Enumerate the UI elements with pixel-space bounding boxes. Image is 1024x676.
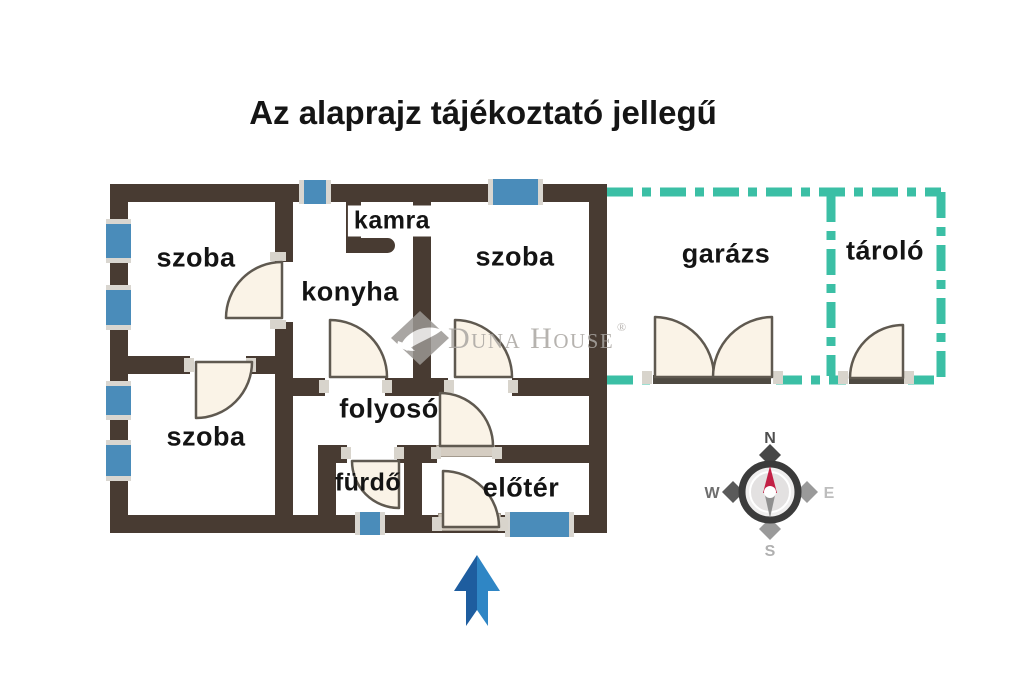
room-label-szoba-top-right: szoba [475, 242, 554, 273]
room-label-szoba-bottom-left: szoba [166, 422, 245, 453]
room-label-szoba-top-left: szoba [156, 243, 235, 274]
door-jamb [431, 447, 441, 459]
entrance-arrow-light-half [477, 555, 500, 626]
entrance-arrow-icon [454, 555, 500, 626]
door-jamb [270, 252, 286, 261]
compass-label-east: E [824, 485, 835, 502]
door-jamb [319, 380, 329, 393]
door-jamb [270, 320, 286, 329]
watermark-brand-text: Duna House [448, 322, 614, 355]
watermark-registered-mark: ® [617, 320, 626, 334]
door-jamb [444, 380, 454, 393]
compass-label-south: S [765, 543, 776, 560]
room-label-furdo: fürdő [335, 469, 401, 498]
door-arc-tarolo [850, 325, 903, 378]
room-label-tarolo: tároló [846, 236, 924, 267]
door-jamb [341, 447, 351, 459]
room-label-eloter: előtér [483, 473, 560, 504]
compass-center-dot [764, 486, 776, 498]
room-label-garazs: garázs [682, 239, 771, 270]
room-label-folyoso: folyosó [339, 394, 439, 425]
floor-plan-canvas: Az alaprajz tájékoztató jellegű [0, 0, 1024, 676]
door-arc-szoba-bottom-left [196, 362, 252, 418]
door-jamb [184, 358, 194, 372]
door-jamb [432, 517, 442, 531]
door-jamb [642, 371, 652, 384]
door-arc-garage-right [713, 317, 772, 377]
compass-rose: N W E S [704, 430, 834, 560]
door-jamb [382, 380, 392, 393]
room-label-konyha: konyha [301, 277, 399, 308]
door-jamb [492, 447, 502, 459]
door-jamb [904, 371, 914, 384]
entrance-arrow-dark-half [454, 555, 477, 626]
door-jamb [394, 447, 404, 459]
door-jamb [773, 371, 783, 384]
plan-overlay: Duna House ® N W E S [0, 0, 1024, 676]
door-arc-folyoso [440, 393, 493, 446]
compass-label-west: W [704, 485, 720, 502]
door-arc-konyha [330, 320, 387, 377]
door-jamb [508, 380, 518, 393]
compass-label-north: N [764, 430, 776, 447]
room-label-kamra: kamra [348, 206, 436, 237]
door-arc-garage-left [655, 317, 714, 377]
door-jamb [838, 371, 848, 384]
